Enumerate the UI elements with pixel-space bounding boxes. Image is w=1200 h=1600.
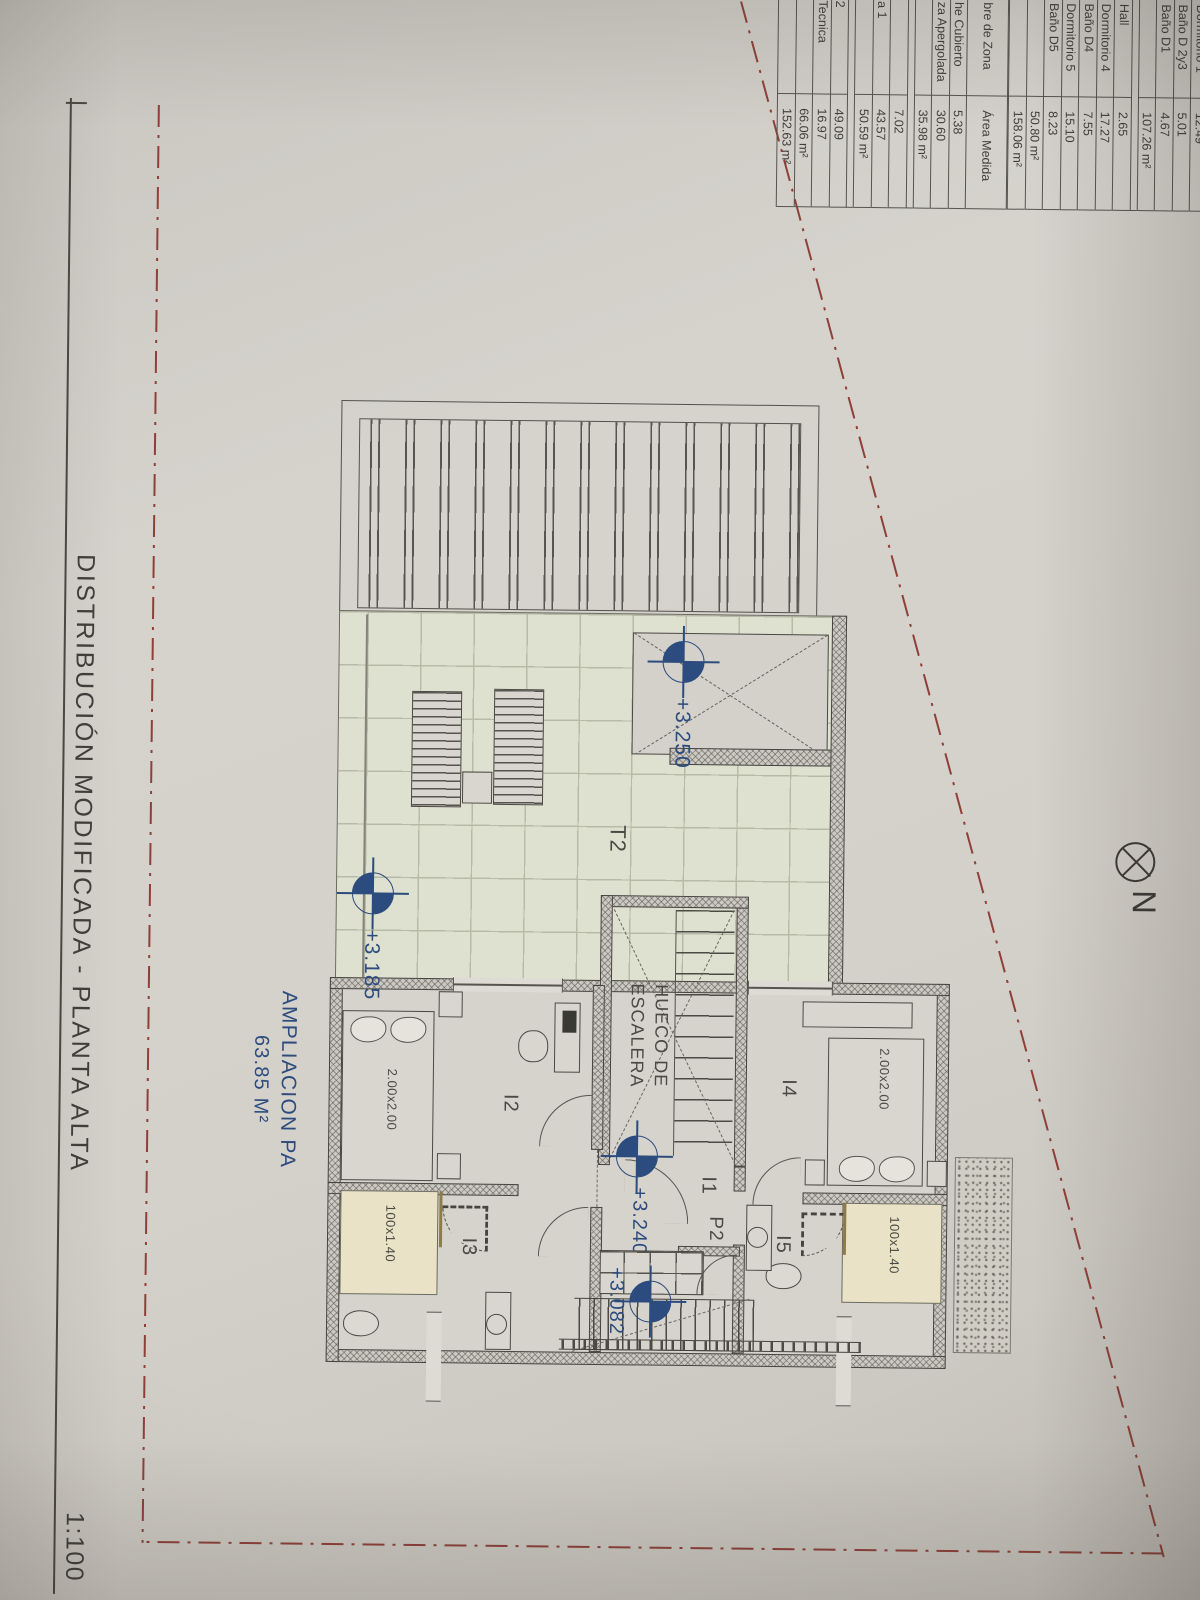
zone-area: 5.38 [949, 96, 967, 209]
zone-area-header: Área Medida [966, 96, 1007, 209]
level-value-stair: +3.082 [604, 1267, 628, 1335]
table-row: 249.09 [829, 0, 849, 208]
table-row: Dormitorio 417.27 [1095, 0, 1115, 211]
area-measurement-table: Dormitorio 112.49Baño D 2y35.01Baño D14.… [776, 0, 1200, 212]
table-upper-sections: Dormitorio 112.49Baño D 2y35.01Baño D14.… [1007, 0, 1200, 212]
zone-area: 15.10 [1061, 97, 1079, 210]
zone-name: Tecnica [814, 0, 832, 95]
zone-area: 158.06 m² [1008, 97, 1026, 210]
chair [518, 1030, 548, 1062]
zone-area: 152.63 m² [777, 94, 795, 207]
zone-area: 2.65 [1113, 98, 1131, 211]
level-marker [616, 1135, 658, 1177]
zone-name: Baño D4 [1080, 0, 1098, 98]
zone-area: 7.55 [1078, 97, 1096, 210]
table-row: za Apergolada30.60 [930, 0, 950, 209]
window [836, 1316, 852, 1406]
north-label: N [1125, 890, 1163, 914]
dresser [802, 1001, 912, 1028]
table-row: 66.06 m² [794, 0, 814, 207]
table-row: Hall2.65 [1112, 0, 1132, 211]
nightstand [439, 991, 463, 1017]
table-header-row: bre de Zona Área Medida [965, 0, 1010, 210]
nightstand [437, 1153, 461, 1179]
stair-void-label-line2: ESCALERA [625, 935, 648, 1135]
table-row: 50.59 m² [853, 0, 873, 208]
table-row: Baño D58.23 [1042, 0, 1062, 210]
table-row: a 143.57 [871, 0, 891, 208]
level-value-terrace-lower: +3.185 [359, 929, 384, 1000]
table-row: Baño D47.55 [1077, 0, 1097, 211]
gravel-roof-strip [953, 1157, 1013, 1354]
stair-void-label-line1: HUECO DE [649, 936, 672, 1136]
zone-name [796, 0, 814, 94]
floorplan-photo: DISTRIBUCIÓN MODIFICADA - PLANTA ALTA 1:… [0, 0, 1200, 1600]
table-row: Dormitorio 515.10 [1060, 0, 1080, 210]
table-row: 152.63 m² [776, 0, 796, 207]
wall [591, 985, 605, 1150]
zone-area: 43.57 [872, 95, 890, 208]
extension-area-label: AMPLIACION PA 63.85 M² [248, 989, 301, 1170]
zone-area: 50.80 m² [1026, 97, 1044, 210]
zone-name: Baño D1 [1156, 0, 1174, 98]
room-label-i4: I4 [777, 1079, 800, 1098]
sun-lounger [493, 689, 544, 806]
zone-area: 12.49 [1190, 99, 1200, 212]
bed-size-label: 2.00x2.00 [877, 1048, 893, 1110]
table-row: he Cubierto5.38 [948, 0, 968, 209]
table-lower-sections: he Cubierto5.38za Apergolada30.6035.98 m… [776, 0, 968, 209]
zone-area: 16.97 [812, 94, 830, 207]
page-title: DISTRIBUCIÓN MODIFICADA - PLANTA ALTA [64, 554, 100, 1173]
plot-boundary-line [141, 105, 160, 1543]
shower-door-leaf [439, 1191, 443, 1247]
sun-lounger [411, 691, 462, 808]
nightstand [805, 1159, 825, 1185]
room-label-i2: I2 [498, 1094, 521, 1113]
window [426, 1312, 442, 1402]
shower-size-label: 100x1.40 [887, 1216, 903, 1274]
zone-area: 35.98 m² [914, 96, 932, 209]
zone-name [1139, 0, 1157, 98]
toilet [343, 1310, 379, 1336]
bed-size-label: 2.00x2.00 [384, 1069, 400, 1131]
table-row: 158.06 m² [1007, 0, 1027, 210]
skylight-void [632, 632, 829, 756]
zone-name: a 1 [873, 0, 891, 95]
scale-label: 1:100 [59, 1512, 89, 1582]
zone-area: 30.60 [931, 96, 949, 209]
zone-name: za Apergolada [933, 0, 951, 96]
zone-area: 8.23 [1043, 97, 1061, 210]
zone-area: 50.59 m² [854, 95, 872, 208]
table-row: 107.26 m² [1137, 0, 1157, 211]
zone-name [891, 0, 909, 95]
table-row: 35.98 m² [913, 0, 933, 209]
nightstand [927, 1161, 947, 1187]
extension-line1: AMPLIACION PA [275, 989, 301, 1169]
drawing-sheet: DISTRIBUCIÓN MODIFICADA - PLANTA ALTA 1:… [0, 0, 1200, 1600]
zone-name: Hall [1114, 0, 1132, 98]
zone-name [1027, 0, 1045, 97]
desk-monitor [562, 1011, 576, 1033]
door-label-p2: P2 [704, 1216, 726, 1241]
zone-area: 66.06 m² [795, 94, 813, 207]
zone-name: Baño D 2y3 [1174, 0, 1192, 99]
shower-door-leaf [843, 1203, 847, 1255]
sink [486, 1314, 507, 1335]
wall [734, 1167, 746, 1192]
plot-boundary-line [140, 1541, 1164, 1555]
level-value-terrace-upper: +3.250 [669, 698, 694, 769]
zone-name [915, 0, 933, 96]
zone-name [779, 0, 797, 94]
zone-name: 2 [831, 0, 849, 95]
zone-name: Dormitorio 1 [1191, 0, 1200, 99]
zone-name [856, 0, 874, 95]
zone-name: he Cubierto [950, 0, 968, 96]
zone-area: 5.01 [1173, 98, 1191, 211]
title-rule-tick [66, 102, 87, 104]
wall [828, 616, 847, 988]
table-row: Tecnica16.97 [811, 0, 831, 208]
side-table [462, 771, 492, 803]
extension-line2: 63.85 M² [248, 989, 273, 1169]
zone-area: 49.09 [830, 95, 848, 208]
room-label-i5: I5 [771, 1235, 794, 1254]
wall [601, 895, 749, 909]
floor-plan: HUECO DE ESCALERA 2.00x2.00 I4 100x1.40 [324, 392, 960, 1374]
table-row: Baño D 2y35.01 [1172, 0, 1192, 212]
zone-area: 4.67 [1155, 98, 1173, 211]
zone-name-header: bre de Zona [968, 0, 1010, 97]
wall [669, 748, 845, 767]
table-row: 50.80 m² [1025, 0, 1045, 210]
zone-area: 107.26 m² [1138, 98, 1156, 211]
level-marker [352, 872, 394, 914]
north-symbol-icon [1115, 842, 1155, 882]
zone-name: Dormitorio 5 [1062, 0, 1080, 97]
terrace-label: T2 [604, 825, 630, 853]
room-label-i3: I3 [457, 1237, 480, 1256]
table-row: Baño D14.67 [1154, 0, 1174, 211]
zone-area: 17.27 [1096, 98, 1114, 211]
room-label-i1: I1 [697, 1176, 720, 1195]
table-row: 7.02 [888, 0, 908, 208]
level-value-hall: +3.240 [627, 1187, 651, 1255]
level-marker [662, 641, 704, 683]
zone-name [1010, 0, 1028, 97]
sink [747, 1227, 768, 1248]
stair-treads [673, 910, 735, 1157]
shower-size-label: 100x1.40 [383, 1205, 399, 1263]
level-marker [629, 1280, 671, 1322]
zone-area: 7.02 [889, 95, 907, 208]
zone-name: Dormitorio 4 [1097, 0, 1115, 98]
zone-name: Baño D5 [1045, 0, 1063, 97]
pergola-slats [357, 418, 801, 613]
